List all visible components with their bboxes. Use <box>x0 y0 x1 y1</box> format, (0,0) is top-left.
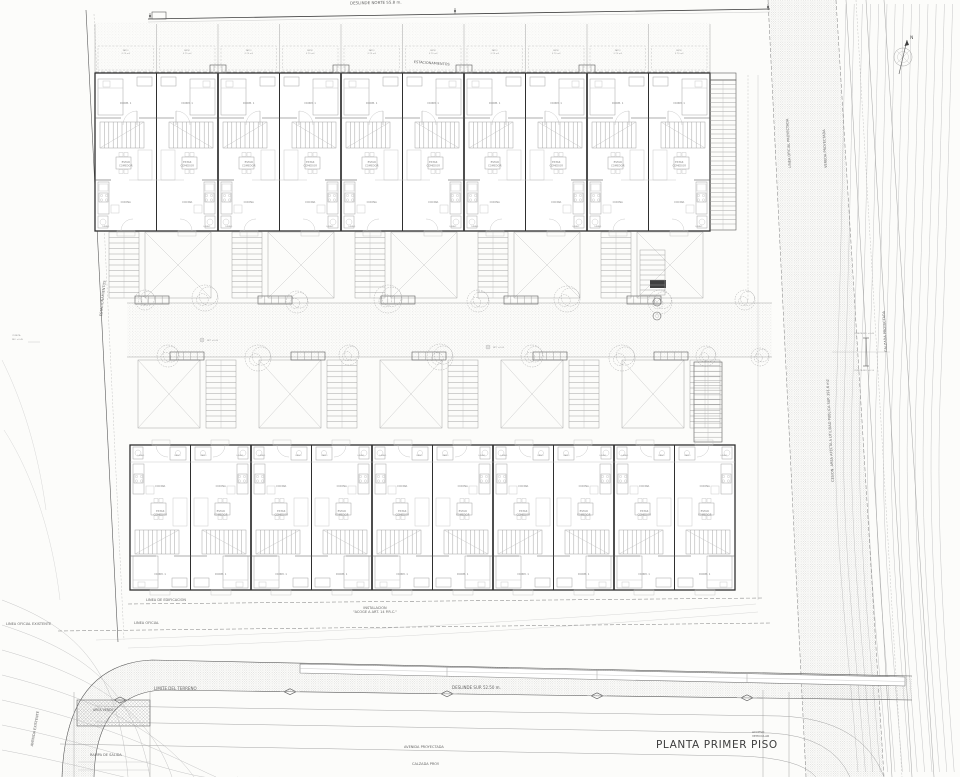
room-label: COMEDOR <box>516 513 530 517</box>
room-label: COMEDOR <box>549 164 563 168</box>
room-label: LAVAD. <box>137 454 145 457</box>
room-label: DORM. 1 <box>182 101 194 105</box>
room-label: 3.75 m2 <box>183 53 192 55</box>
parking-strip: PATIO3.75 m2PATIO3.75 m2PATIO3.75 m2PATI… <box>95 22 710 72</box>
room-label: COCINA <box>305 200 315 204</box>
room-label: COCINA <box>244 200 254 204</box>
room-label: COCINA <box>121 200 131 204</box>
boundary-north-label: DESLINDE NORTE 55.8 m. <box>350 1 402 6</box>
right-road <box>768 0 934 777</box>
room-label: COCINA <box>700 484 710 488</box>
room-label: ESTAR <box>429 160 437 164</box>
room-label: COMEDOR <box>456 513 470 517</box>
room-label: PATIO <box>369 49 375 52</box>
room-label: COCINA <box>551 200 561 204</box>
room-label: LAVAD. <box>500 454 508 457</box>
room-label: 3.75 m2 <box>121 53 130 55</box>
room-label: LAVAD. <box>621 454 629 457</box>
room-label: PATIO <box>184 49 190 52</box>
room-label: LAVAD. <box>203 225 211 228</box>
official-line-label: LINEA OFICIAL <box>134 621 159 625</box>
room-label: LAVAD. <box>478 454 486 457</box>
room-label: ESTAR <box>675 160 683 164</box>
vehicle-access-label: ACCESO VEHICULAR <box>752 731 778 739</box>
room-label: LAVAD. <box>720 454 728 457</box>
room-label: COCINA <box>579 484 589 488</box>
room-label: COCINA <box>397 484 407 488</box>
room-label: 3.75 m2 <box>613 53 622 55</box>
room-label: COMEDOR <box>672 164 686 168</box>
room-label: ESTAR <box>459 509 467 513</box>
room-label: 3.75 m2 <box>367 53 376 55</box>
room-label: PATIO <box>553 49 559 52</box>
exterior-stair-upper <box>710 73 736 230</box>
room-label: COMEDOR <box>577 513 591 517</box>
room-label: COMEDOR <box>698 513 712 517</box>
room-label: LAVAD. <box>102 225 110 228</box>
room-label: COMEDOR <box>426 164 440 168</box>
room-label: COCINA <box>337 484 347 488</box>
room-label: CUNETA <box>12 334 21 337</box>
room-label: DORM. 1 <box>674 101 686 105</box>
lower-block: LAVAD.BAÑOCOCINAESTARCOMEDORDORM. 1LAVAD… <box>130 440 735 595</box>
bottom-road <box>60 660 912 777</box>
plan-drawing: PATIO3.75 m2PATIO3.75 m2PATIO3.75 m2PATI… <box>0 0 960 777</box>
room-label: DORM. 1 <box>120 101 132 105</box>
room-label: COCINA <box>216 484 226 488</box>
room-label: LAVAD. <box>225 225 233 228</box>
room-label: COCINA <box>518 484 528 488</box>
room-label: DORM. 1 <box>397 572 409 576</box>
room-label: DORM. 1 <box>243 101 255 105</box>
building-line-label: LINEA DE EDIFICACION <box>146 598 186 602</box>
room-label: COCINA <box>155 484 165 488</box>
boundary-south-label: DESLINDE SUR 52.50 m. <box>452 686 501 691</box>
room-label: LAVAD. <box>258 454 266 457</box>
room-label: 3.75 m2 <box>429 53 438 55</box>
room-label: LAVAD. <box>572 225 580 228</box>
room-label: COCINA <box>458 484 468 488</box>
room-label: ESTAR <box>277 509 285 513</box>
room-label: 3.75 m2 <box>675 53 684 55</box>
room-label: LAVAD. <box>236 454 244 457</box>
room-label: ESTAR <box>580 509 588 513</box>
room-label: BAÑO <box>174 454 180 457</box>
room-label: DORM. 1 <box>155 572 167 576</box>
site-limit-label: LIMITE DEL TERRENO <box>154 687 197 692</box>
room-label: ESTAR <box>640 509 648 513</box>
plan-title: PLANTA PRIMER PISO <box>656 739 778 751</box>
installation-note: INSTALACION "ACOGE A ART. 14 P.R.C." <box>330 606 420 614</box>
room-label: ESTAR <box>398 509 406 513</box>
room-label: DORM. 1 <box>551 101 563 105</box>
room-label: PATIO <box>246 49 252 52</box>
room-label: CUNETA NIV. +0.45 <box>854 332 875 335</box>
upper-block: DORM. 1ESTARCOMEDORCOCINALAVAD.DORM. 1ES… <box>95 65 710 236</box>
room-label: PATIO <box>307 49 313 52</box>
room-label: 3.75 m2 <box>552 53 561 55</box>
projected-avenue-label: AVENIDA PROYECTADA <box>404 745 444 749</box>
room-label: COMEDOR <box>365 164 379 168</box>
room-label: DORM. 1 <box>699 572 711 576</box>
room-label: ESTAR <box>368 160 376 164</box>
room-label: DORM. 1 <box>276 572 288 576</box>
room-label: LAVAD. <box>594 225 602 228</box>
room-label: DORM. 1 <box>457 572 469 576</box>
room-label: COMEDOR <box>242 164 256 168</box>
installation-note-line2: "ACOGE A ART. 14 P.R.C." <box>330 610 420 614</box>
room-label: 3.75 m2 <box>306 53 315 55</box>
room-label: BAÑO <box>416 454 422 457</box>
room-label: LAVAD. <box>599 454 607 457</box>
room-label: ESTAR <box>614 160 622 164</box>
room-label: BAÑO <box>200 454 206 457</box>
room-label: LAVAD. <box>449 225 457 228</box>
room-label: LAVAD. <box>695 225 703 228</box>
room-label: COMEDOR <box>303 164 317 168</box>
room-label: COCINA <box>674 200 684 204</box>
room-label: PATIO <box>123 49 129 52</box>
exit-ramp-label: RAMPA DE SALIDA <box>90 753 122 757</box>
room-label: BAÑO <box>658 454 664 457</box>
room-label: DORM. 1 <box>428 101 440 105</box>
room-label: BAÑO <box>321 454 327 457</box>
room-label: ESTAR <box>519 509 527 513</box>
exterior-stair-lower <box>694 362 722 442</box>
room-label: ESTAR <box>338 509 346 513</box>
existing-official-line-label: LINEA OFICIAL EXISTENTE <box>6 622 51 626</box>
room-label: LAVAD. <box>379 454 387 457</box>
room-label: ESTAR <box>156 509 164 513</box>
room-label: DORM. 1 <box>612 101 624 105</box>
room-label: COMEDOR <box>119 164 133 168</box>
room-label: ESTAR <box>217 509 225 513</box>
room-label: ESTAR <box>552 160 560 164</box>
yards-lower <box>138 352 720 428</box>
room-label: COMEDOR <box>214 513 228 517</box>
room-label: NPT +0.00 <box>207 339 219 342</box>
room-label: ESTAR <box>122 160 130 164</box>
room-label: CUNETA NIV. +0.15 <box>854 369 875 372</box>
room-label: COMEDOR <box>153 513 167 517</box>
room-label: NIV. +0.45 <box>12 338 24 341</box>
room-label: PATIO <box>615 49 621 52</box>
room-label: NPT +0.00 <box>493 346 505 349</box>
room-label: BAÑO <box>684 454 690 457</box>
room-label: 3.75 m2 <box>244 53 253 55</box>
green-area-label: AREA VERDE <box>93 709 113 713</box>
room-label: DORM. 1 <box>366 101 378 105</box>
room-label: COMEDOR <box>637 513 651 517</box>
room-label: BAÑO <box>563 454 569 457</box>
room-label: DORM. 1 <box>215 572 227 576</box>
room-label: LAVAD. <box>348 225 356 228</box>
room-label: LAVAD. <box>326 225 334 228</box>
room-label: ESTAR <box>701 509 709 513</box>
projected-roadway-label-bottom: CALZADA PROY. <box>412 762 439 766</box>
room-label: COCINA <box>428 200 438 204</box>
room-label: DORM. 1 <box>305 101 317 105</box>
room-label: 3.75 m2 <box>490 53 499 55</box>
room-label: BAÑO <box>537 454 543 457</box>
room-label: COCINA <box>613 200 623 204</box>
room-label: COCINA <box>367 200 377 204</box>
room-label: DORM. 1 <box>518 572 530 576</box>
room-label: ESTAR <box>491 160 499 164</box>
room-label: N <box>910 35 913 41</box>
room-label: COMEDOR <box>335 513 349 517</box>
room-label: ESTAR <box>183 160 191 164</box>
room-label: PATIO <box>492 49 498 52</box>
room-label: BAÑO <box>295 454 301 457</box>
room-label: COMEDOR <box>488 164 502 168</box>
room-label: COCINA <box>639 484 649 488</box>
room-label: COCINA <box>490 200 500 204</box>
room-label: LAVAD. <box>471 225 479 228</box>
room-label: COCINA <box>276 484 286 488</box>
room-label: PATIO <box>430 49 436 52</box>
room-label: ESTAR <box>306 160 314 164</box>
room-label: BAÑO <box>442 454 448 457</box>
room-label: COMEDOR <box>611 164 625 168</box>
room-label: COMEDOR <box>395 513 409 517</box>
room-label: DORM. 1 <box>578 572 590 576</box>
courtyard: NPT +0.00NPT +0.00 <box>127 303 772 357</box>
room-label: LAVAD. <box>357 454 365 457</box>
room-label: COMEDOR <box>180 164 194 168</box>
room-label: COMEDOR <box>274 513 288 517</box>
room-label: COCINA <box>182 200 192 204</box>
room-label: ESTAR <box>245 160 253 164</box>
floor-plan-sheet: PATIO3.75 m2PATIO3.75 m2PATIO3.75 m2PATI… <box>0 0 960 777</box>
room-label: DORM. 1 <box>489 101 501 105</box>
room-label: PATIO <box>676 49 682 52</box>
room-label: DORM. 1 <box>336 572 348 576</box>
room-label: DORM. 1 <box>639 572 651 576</box>
